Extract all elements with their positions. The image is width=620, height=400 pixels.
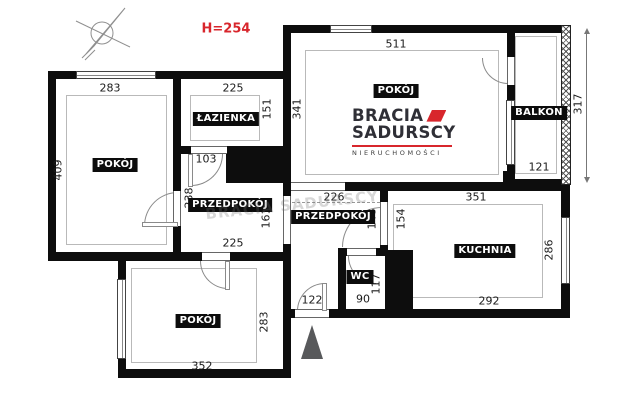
- north-arrow-icon: [72, 2, 164, 66]
- wall: [230, 252, 291, 261]
- dimension-label: 121: [529, 161, 550, 174]
- dimension-label: 409: [52, 160, 65, 181]
- door-leaf: [188, 154, 193, 187]
- dimension-line: [586, 30, 587, 180]
- dimension-label: 225: [223, 237, 244, 250]
- wall: [561, 182, 570, 218]
- shaft-block: [226, 146, 283, 183]
- wall: [508, 179, 569, 187]
- room-label-pokoj-main: POKÓJ: [374, 84, 419, 98]
- wall: [173, 71, 181, 192]
- dimension-label: 90: [356, 293, 370, 306]
- door-opening: [347, 248, 376, 256]
- dimension-label: 122: [302, 294, 323, 307]
- room-label-pokoj-left: POKÓJ: [93, 158, 138, 172]
- wall: [380, 182, 388, 203]
- dimension-label: 292: [479, 295, 500, 308]
- wall: [118, 358, 126, 378]
- wall: [338, 248, 346, 312]
- wall: [507, 25, 515, 59]
- door-opening: [202, 252, 230, 261]
- dimension-arrow: [584, 177, 590, 183]
- dimension-label: 283: [258, 312, 271, 333]
- room-label-balkon: BALKON: [511, 106, 567, 120]
- dimension-arrow: [584, 28, 590, 34]
- wall: [507, 84, 515, 101]
- door-leaf: [225, 261, 230, 290]
- door-opening: [507, 57, 515, 85]
- entrance-arrow-icon: [301, 325, 323, 359]
- room-label-kuchnia: KUCHNIA: [454, 244, 515, 258]
- agency-logo: BRACIA SADURSCY NIERUCHOMOŚCI: [352, 107, 452, 157]
- wall: [173, 71, 291, 79]
- dimension-label: 283: [100, 82, 121, 95]
- logo-flag-icon: [426, 110, 446, 122]
- wall: [283, 244, 291, 377]
- window: [561, 217, 570, 284]
- wall: [283, 182, 291, 197]
- door-opening: [173, 191, 181, 226]
- dimension-label: 151: [261, 99, 274, 120]
- shaft-block: [385, 250, 413, 311]
- logo-tagline: NIERUCHOMOŚCI: [352, 149, 452, 157]
- ceiling-height-note: H=254: [202, 22, 251, 37]
- room-label-lazienka: ŁAZIENKA: [193, 112, 259, 126]
- floor-plan: 511 341 283 409 225 151 103 238 161 225 …: [0, 0, 620, 400]
- wall: [561, 283, 570, 318]
- window: [76, 71, 156, 79]
- dimension-label: 352: [192, 360, 213, 373]
- room-label-wc: WC: [347, 270, 374, 284]
- shaft-block: [503, 171, 515, 187]
- room-outline: [515, 36, 557, 174]
- door-opening: [380, 202, 388, 245]
- dimension-label: 317: [572, 94, 585, 115]
- dimension-label: 225: [223, 82, 244, 95]
- window: [330, 25, 372, 33]
- wall: [283, 25, 515, 33]
- wall: [508, 25, 569, 33]
- logo-line2: SADURSCY: [352, 124, 452, 141]
- dimension-label: 286: [543, 240, 556, 261]
- logo-line1: BRACIA: [352, 107, 423, 124]
- door-leaf: [322, 283, 327, 311]
- dimension-label: 351: [466, 191, 487, 204]
- dimension-label: 511: [386, 38, 407, 51]
- window: [117, 279, 126, 359]
- wall: [173, 226, 181, 261]
- hatched-wall: [561, 25, 571, 185]
- dimension-label: 341: [291, 99, 304, 120]
- dimension-label: 103: [196, 153, 217, 166]
- logo-rule: [352, 145, 452, 147]
- room-label-pokoj-bottom: POKÓJ: [176, 314, 221, 328]
- dimension-label: 154: [395, 209, 408, 230]
- door-leaf: [142, 222, 178, 227]
- wall: [118, 252, 126, 280]
